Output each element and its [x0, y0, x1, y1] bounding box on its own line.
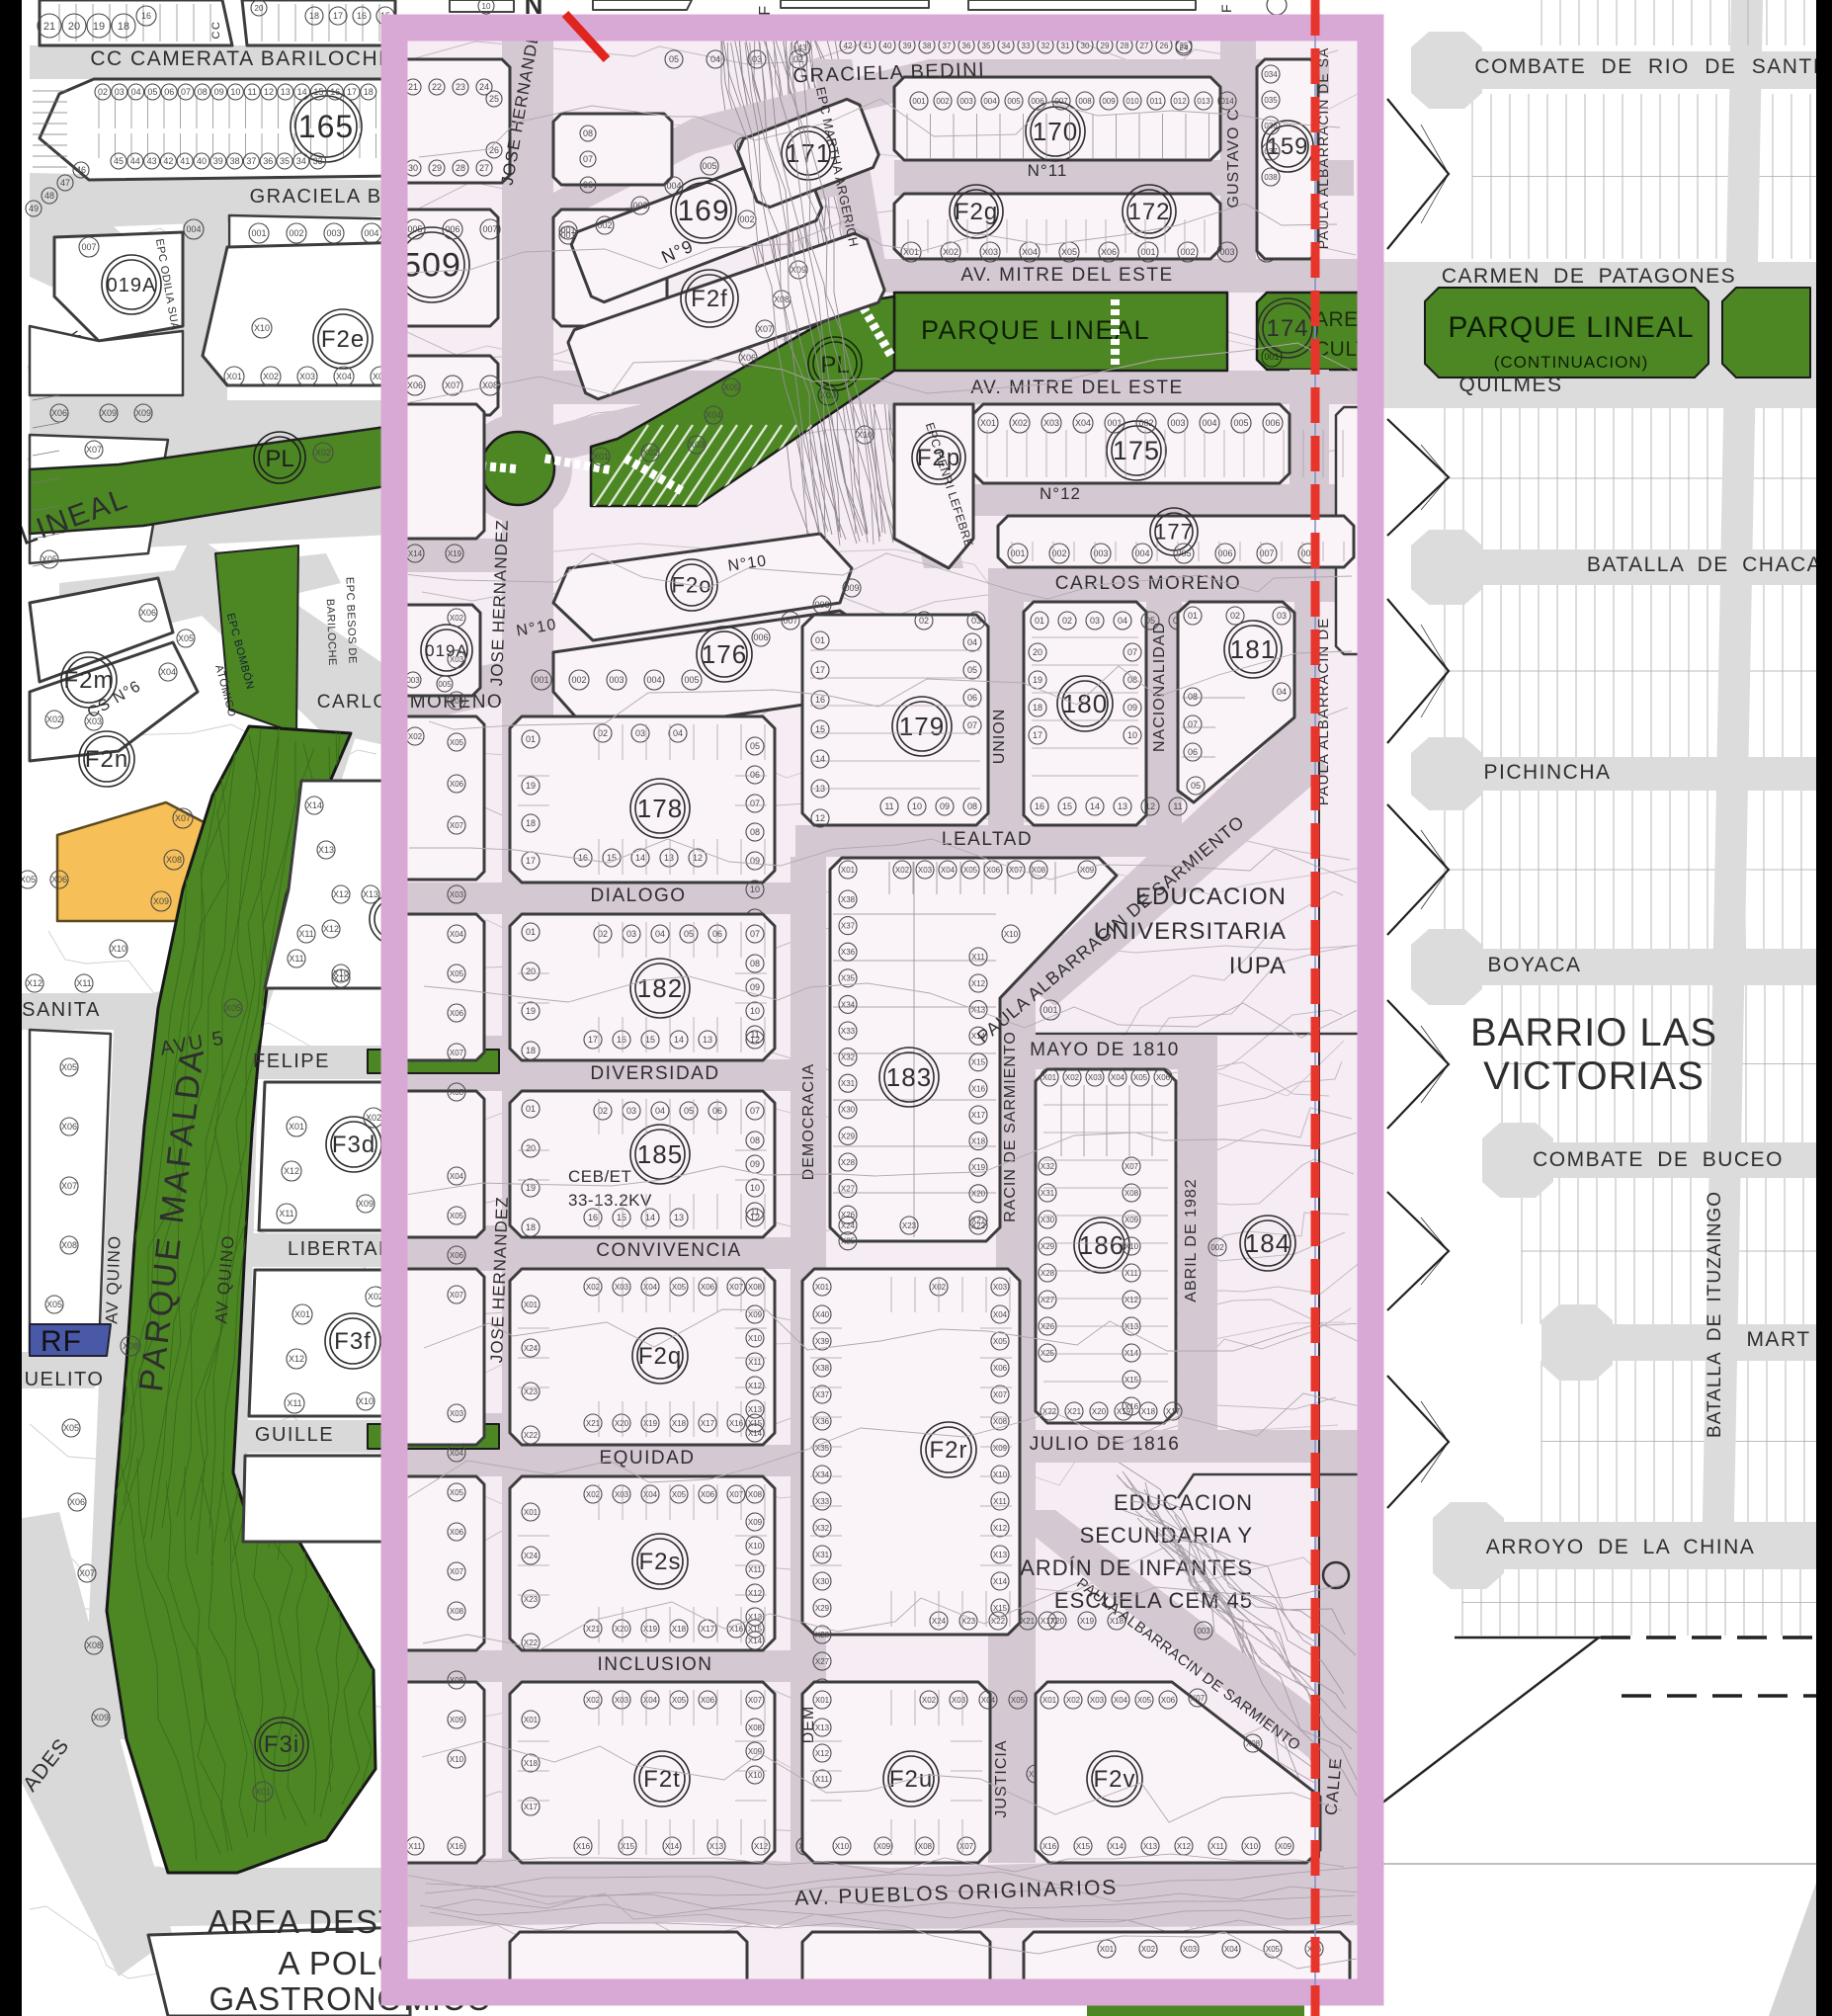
svg-text:002: 002: [1180, 247, 1195, 257]
svg-text:001: 001: [251, 228, 266, 238]
svg-text:08: 08: [967, 801, 977, 811]
svg-text:X09: X09: [101, 408, 117, 418]
svg-text:X11: X11: [408, 1842, 422, 1851]
svg-text:X14: X14: [306, 800, 322, 810]
svg-text:03: 03: [635, 728, 645, 738]
svg-text:X39: X39: [815, 1337, 830, 1346]
svg-text:SANITA: SANITA: [22, 999, 101, 1021]
svg-text:X10: X10: [748, 1334, 763, 1343]
svg-text:23: 23: [456, 82, 465, 92]
svg-text:DIVERSIDAD: DIVERSIDAD: [590, 1063, 719, 1084]
svg-text:28: 28: [1121, 42, 1129, 50]
svg-text:002: 002: [936, 97, 950, 106]
svg-text:X23: X23: [902, 1221, 917, 1230]
svg-text:X04: X04: [643, 1696, 658, 1705]
svg-text:30: 30: [408, 163, 418, 173]
svg-text:X09: X09: [1278, 1842, 1292, 1851]
svg-text:NACIONALIDAD: NACIONALIDAD: [1151, 622, 1168, 752]
svg-text:X15: X15: [1124, 1376, 1139, 1385]
svg-text:06: 06: [164, 87, 174, 97]
svg-text:GUILLE: GUILLE: [255, 1424, 334, 1446]
svg-text:X05: X05: [61, 1062, 77, 1072]
svg-text:02: 02: [598, 929, 608, 939]
svg-text:X05: X05: [1061, 247, 1077, 257]
svg-text:27: 27: [1140, 42, 1149, 50]
svg-text:X06: X06: [407, 380, 423, 390]
svg-text:X08: X08: [450, 1607, 464, 1616]
svg-text:X18: X18: [524, 1759, 539, 1768]
svg-text:08: 08: [198, 87, 208, 97]
svg-text:38: 38: [230, 156, 240, 166]
svg-text:009: 009: [1102, 97, 1116, 106]
svg-text:X12: X12: [289, 1354, 304, 1364]
svg-text:X08: X08: [748, 1723, 763, 1732]
svg-text:004: 004: [364, 228, 378, 238]
svg-text:35: 35: [982, 42, 991, 50]
svg-text:X11: X11: [1210, 1842, 1224, 1851]
svg-text:X06: X06: [986, 866, 1001, 875]
svg-text:X05: X05: [672, 1696, 687, 1705]
svg-text:39: 39: [213, 156, 223, 166]
svg-text:006: 006: [1265, 418, 1280, 428]
svg-text:X06: X06: [450, 1528, 464, 1537]
svg-text:004: 004: [646, 675, 661, 685]
svg-text:20: 20: [255, 4, 264, 13]
svg-text:X02: X02: [922, 1696, 937, 1705]
svg-text:X12: X12: [333, 889, 349, 899]
svg-text:001: 001: [1042, 1005, 1057, 1015]
svg-text:X10: X10: [993, 1470, 1008, 1479]
svg-text:X11: X11: [287, 1398, 301, 1408]
svg-text:X17: X17: [701, 1419, 715, 1428]
svg-text:X10: X10: [450, 1755, 464, 1764]
svg-text:X12: X12: [971, 979, 986, 988]
svg-text:X02: X02: [586, 1696, 601, 1705]
svg-text:X24: X24: [841, 1221, 856, 1230]
svg-text:X06: X06: [701, 1283, 715, 1292]
svg-text:X09: X09: [1124, 1216, 1139, 1224]
svg-text:X08: X08: [1032, 866, 1046, 875]
svg-text:005: 005: [1233, 418, 1248, 428]
svg-text:07: 07: [750, 929, 760, 939]
svg-text:019A: 019A: [107, 275, 157, 296]
svg-text:EQUIDAD: EQUIDAD: [599, 1448, 695, 1469]
svg-text:X20: X20: [615, 1419, 629, 1428]
svg-text:X07: X07: [450, 1291, 464, 1300]
svg-text:X04: X04: [1111, 1073, 1125, 1082]
svg-text:005: 005: [438, 680, 452, 689]
svg-text:X07: X07: [61, 1181, 77, 1191]
svg-text:X12: X12: [1177, 1842, 1192, 1851]
svg-text:12: 12: [815, 813, 825, 823]
svg-text:05: 05: [1191, 781, 1201, 791]
svg-text:X32: X32: [815, 1524, 830, 1533]
svg-text:001: 001: [1107, 418, 1122, 428]
svg-text:06: 06: [750, 770, 760, 780]
svg-text:006: 006: [753, 632, 768, 642]
svg-text:X34: X34: [815, 1470, 830, 1479]
svg-text:19: 19: [93, 21, 105, 33]
svg-text:X04: X04: [1114, 1696, 1128, 1705]
svg-text:X08: X08: [748, 1283, 763, 1292]
svg-text:003: 003: [1197, 1627, 1210, 1636]
svg-text:X03: X03: [450, 1409, 464, 1418]
svg-text:008: 008: [814, 600, 829, 610]
svg-text:F2v: F2v: [1093, 1766, 1135, 1793]
svg-text:X06: X06: [993, 1364, 1008, 1373]
svg-text:X05: X05: [63, 1423, 79, 1433]
svg-text:44: 44: [130, 156, 140, 166]
svg-text:X03: X03: [615, 1490, 629, 1499]
svg-text:X07: X07: [993, 1390, 1008, 1399]
svg-text:X13: X13: [1143, 1842, 1158, 1851]
svg-text:(CONTINUACION): (CONTINUACION): [1494, 353, 1649, 372]
svg-text:X03: X03: [982, 247, 998, 257]
svg-text:X19: X19: [1117, 1407, 1131, 1416]
svg-text:41: 41: [180, 156, 190, 166]
svg-text:04: 04: [655, 929, 665, 939]
svg-text:002: 002: [289, 228, 303, 238]
svg-text:29: 29: [432, 163, 442, 173]
svg-text:X06: X06: [450, 1251, 464, 1260]
svg-text:X27: X27: [815, 1657, 830, 1666]
svg-text:X07: X07: [79, 1568, 95, 1578]
svg-text:08: 08: [583, 128, 593, 138]
svg-text:037: 037: [1264, 147, 1278, 156]
svg-text:X04: X04: [336, 372, 352, 381]
svg-text:X21: X21: [1067, 1407, 1082, 1416]
svg-text:X07: X07: [450, 821, 464, 830]
svg-text:X07: X07: [729, 1490, 744, 1499]
svg-text:X38: X38: [815, 1364, 830, 1373]
svg-text:18: 18: [526, 1222, 536, 1232]
svg-text:FELIPE: FELIPE: [253, 1050, 330, 1072]
svg-text:X16: X16: [729, 1419, 744, 1428]
svg-text:X02: X02: [1141, 1945, 1156, 1954]
svg-text:X01: X01: [815, 1696, 830, 1705]
svg-text:X09: X09: [135, 408, 151, 418]
svg-text:X04: X04: [643, 1490, 658, 1499]
svg-text:002: 002: [1051, 548, 1066, 558]
svg-text:X03: X03: [952, 1696, 966, 1705]
svg-text:17: 17: [815, 665, 825, 675]
svg-text:UNION: UNION: [991, 709, 1008, 765]
svg-text:002: 002: [739, 214, 754, 224]
svg-text:X04: X04: [450, 697, 464, 706]
svg-text:003: 003: [609, 675, 624, 685]
svg-text:20: 20: [526, 1143, 536, 1153]
svg-text:X31: X31: [1041, 1189, 1055, 1198]
svg-text:X05: X05: [450, 1212, 464, 1220]
svg-text:18: 18: [118, 21, 129, 33]
svg-text:X23: X23: [524, 1595, 539, 1604]
svg-text:CARMEN DE PATAGONES: CARMEN DE PATAGONES: [1442, 265, 1736, 288]
svg-text:X06: X06: [701, 1696, 715, 1705]
svg-text:X08: X08: [748, 1490, 763, 1499]
svg-text:X10: X10: [748, 1771, 763, 1780]
svg-text:002: 002: [1210, 1243, 1224, 1252]
svg-text:X14: X14: [408, 549, 423, 558]
svg-text:X02: X02: [1066, 1696, 1081, 1705]
svg-text:010: 010: [1125, 97, 1139, 106]
svg-text:X09: X09: [93, 1713, 109, 1722]
svg-text:X06: X06: [1156, 1073, 1171, 1082]
svg-text:DEM: DEM: [800, 1706, 817, 1744]
svg-text:X01: X01: [1042, 1073, 1057, 1082]
svg-text:X01: X01: [524, 1301, 539, 1309]
svg-text:X05: X05: [993, 1337, 1008, 1346]
svg-text:X13: X13: [363, 889, 378, 899]
svg-text:06: 06: [1188, 747, 1198, 757]
svg-text:X08: X08: [450, 1088, 464, 1097]
svg-text:004: 004: [186, 224, 201, 234]
svg-text:X14: X14: [665, 1842, 680, 1851]
svg-text:AV. MITRE DEL ESTE: AV. MITRE DEL ESTE: [960, 265, 1173, 286]
svg-text:X10: X10: [748, 1542, 763, 1551]
svg-text:X05: X05: [723, 382, 739, 392]
svg-text:X12: X12: [993, 1524, 1008, 1533]
svg-text:X38: X38: [841, 895, 856, 904]
svg-text:09: 09: [750, 856, 760, 866]
svg-text:SECUNDARIA Y: SECUNDARIA Y: [1080, 1523, 1253, 1548]
svg-text:14: 14: [674, 1035, 684, 1045]
svg-text:X10: X10: [358, 1396, 374, 1406]
svg-text:X20: X20: [971, 1190, 986, 1199]
svg-text:X03: X03: [689, 440, 705, 450]
svg-text:X05: X05: [1137, 1696, 1152, 1705]
svg-text:X26: X26: [1041, 1322, 1055, 1331]
svg-text:X24: X24: [524, 1344, 539, 1353]
svg-text:CONVIVENCIA: CONVIVENCIA: [596, 1240, 741, 1261]
svg-text:X02: X02: [895, 866, 910, 875]
svg-text:X07: X07: [1191, 1694, 1206, 1703]
svg-text:36: 36: [263, 156, 273, 166]
svg-text:42: 42: [163, 156, 173, 166]
svg-text:X09: X09: [876, 1842, 891, 1851]
svg-text:08: 08: [1188, 692, 1198, 702]
svg-text:003: 003: [406, 676, 420, 685]
svg-text:X09: X09: [153, 896, 169, 906]
svg-text:11: 11: [248, 87, 257, 97]
svg-text:X21: X21: [586, 1419, 601, 1428]
svg-text:22: 22: [432, 82, 442, 92]
svg-text:N°11: N°11: [1028, 161, 1068, 180]
svg-text:RACIN DE SARMIENTO: RACIN DE SARMIENTO: [1002, 1031, 1019, 1222]
svg-text:005: 005: [702, 161, 716, 171]
svg-text:X05: X05: [672, 1283, 687, 1292]
svg-text:01: 01: [1188, 611, 1198, 621]
svg-text:12: 12: [264, 87, 274, 97]
svg-text:170: 170: [1033, 117, 1078, 146]
svg-text:11: 11: [1173, 801, 1182, 811]
svg-text:03: 03: [752, 54, 762, 64]
svg-text:X12: X12: [748, 1382, 763, 1390]
svg-text:X02: X02: [315, 448, 331, 458]
svg-text:X08: X08: [123, 1341, 138, 1351]
svg-text:007: 007: [1259, 548, 1274, 558]
svg-text:001: 001: [912, 97, 926, 106]
svg-text:036: 036: [1264, 122, 1278, 130]
svg-text:18: 18: [364, 87, 374, 97]
svg-text:07: 07: [1127, 647, 1137, 657]
svg-text:X11: X11: [993, 1497, 1007, 1506]
svg-text:VICTORIAS: VICTORIAS: [1483, 1054, 1705, 1098]
svg-text:33: 33: [313, 156, 323, 166]
svg-text:X09: X09: [748, 1518, 763, 1527]
svg-text:X05: X05: [450, 1488, 464, 1497]
svg-text:171: 171: [786, 138, 831, 168]
svg-text:X18: X18: [672, 1625, 687, 1634]
svg-text:X01: X01: [294, 1309, 310, 1319]
svg-text:18: 18: [526, 818, 536, 828]
svg-text:F2n: F2n: [85, 746, 128, 773]
svg-text:14: 14: [297, 87, 307, 97]
svg-text:X01: X01: [1100, 1945, 1115, 1954]
svg-text:002: 002: [597, 220, 612, 230]
svg-text:13: 13: [1118, 801, 1127, 811]
svg-text:X04: X04: [450, 1172, 464, 1181]
svg-text:X11: X11: [279, 1209, 293, 1218]
svg-text:03: 03: [1277, 611, 1287, 621]
svg-text:02: 02: [598, 1106, 608, 1116]
svg-text:X08: X08: [166, 855, 182, 865]
svg-text:X14: X14: [1110, 1842, 1124, 1851]
svg-text:X11: X11: [289, 954, 303, 964]
svg-text:30: 30: [1081, 42, 1090, 50]
svg-text:X16: X16: [971, 1084, 986, 1093]
svg-text:X04: X04: [1075, 418, 1091, 428]
svg-text:37: 37: [943, 42, 952, 50]
svg-text:X17: X17: [971, 1111, 986, 1120]
svg-text:17: 17: [333, 11, 343, 21]
svg-text:04: 04: [967, 637, 977, 647]
svg-text:BARRIO LAS: BARRIO LAS: [1470, 1011, 1717, 1054]
svg-text:X31: X31: [815, 1551, 830, 1559]
svg-text:007: 007: [482, 224, 497, 234]
svg-text:X05: X05: [1133, 1073, 1148, 1082]
svg-text:179: 179: [899, 712, 945, 741]
svg-text:36: 36: [962, 42, 971, 50]
svg-text:X28: X28: [815, 1631, 830, 1639]
svg-text:006: 006: [1031, 97, 1044, 106]
svg-text:F2e: F2e: [321, 326, 365, 353]
svg-text:F2s: F2s: [638, 1549, 681, 1575]
svg-text:01: 01: [1035, 616, 1044, 626]
svg-text:X07: X07: [757, 324, 773, 334]
svg-text:X07: X07: [445, 380, 460, 390]
svg-text:49: 49: [29, 204, 39, 213]
svg-text:12: 12: [750, 1213, 760, 1222]
svg-text:X06: X06: [61, 1122, 77, 1132]
svg-text:F2f: F2f: [691, 286, 728, 312]
svg-text:181: 181: [1230, 634, 1276, 664]
svg-text:X16: X16: [450, 1842, 464, 1851]
svg-text:04: 04: [655, 1106, 665, 1116]
svg-text:03: 03: [626, 1106, 636, 1116]
svg-text:X34: X34: [841, 1000, 856, 1009]
svg-text:013: 013: [1197, 97, 1210, 106]
svg-text:169: 169: [677, 195, 729, 227]
svg-text:006: 006: [445, 224, 459, 234]
svg-text:43: 43: [147, 156, 157, 166]
svg-text:X01: X01: [289, 1122, 304, 1132]
svg-text:X04: X04: [643, 1283, 658, 1292]
svg-text:X03: X03: [993, 1283, 1008, 1292]
svg-text:13: 13: [281, 87, 291, 97]
svg-text:UNIVERSITARIA: UNIVERSITARIA: [1094, 918, 1287, 945]
svg-text:09: 09: [750, 1159, 760, 1169]
svg-text:X05: X05: [20, 875, 36, 884]
svg-text:12: 12: [693, 853, 703, 863]
svg-text:42: 42: [844, 42, 853, 50]
svg-text:25: 25: [489, 94, 499, 104]
svg-text:038: 038: [1264, 173, 1278, 182]
svg-text:003: 003: [1219, 247, 1234, 257]
svg-text:X31: X31: [841, 1079, 856, 1088]
svg-text:BOYACA: BOYACA: [1488, 954, 1582, 976]
svg-text:X07: X07: [729, 1283, 744, 1292]
svg-text:CC CAMERATA BARILOCHE: CC CAMERATA BARILOCHE: [90, 47, 393, 70]
svg-text:X11: X11: [748, 1358, 762, 1367]
svg-text:X21: X21: [1021, 1617, 1036, 1626]
svg-text:EDUCACION: EDUCACION: [1114, 1490, 1253, 1515]
svg-text:X07: X07: [1124, 1162, 1139, 1171]
svg-text:14: 14: [815, 754, 825, 764]
svg-text:LIBERTAD: LIBERTAD: [288, 1238, 394, 1260]
svg-text:07: 07: [750, 1106, 760, 1116]
svg-text:BATALLA DE CHACA: BATALLA DE CHACA: [1587, 553, 1822, 576]
svg-text:X17: X17: [701, 1625, 715, 1634]
svg-text:F3d: F3d: [332, 1132, 375, 1158]
svg-text:X10: X10: [111, 944, 126, 954]
svg-text:03: 03: [626, 929, 636, 939]
svg-text:007: 007: [81, 242, 96, 252]
svg-text:X02: X02: [263, 372, 279, 381]
svg-text:16: 16: [330, 87, 340, 97]
svg-text:JULIO DE 1816: JULIO DE 1816: [1030, 1434, 1181, 1455]
svg-text:X09: X09: [450, 1716, 464, 1724]
svg-text:X15: X15: [1076, 1842, 1091, 1851]
svg-text:41: 41: [864, 42, 873, 50]
svg-text:09: 09: [214, 87, 224, 97]
svg-text:38: 38: [923, 42, 932, 50]
svg-text:X01: X01: [255, 1787, 271, 1797]
svg-text:001: 001: [560, 225, 575, 235]
svg-text:X03: X03: [86, 716, 102, 726]
svg-text:X03: X03: [615, 1283, 629, 1292]
svg-text:X04: X04: [450, 1449, 464, 1458]
svg-text:BARILOCHE: BARILOCHE: [324, 599, 338, 666]
svg-text:CARLOS MORENO: CARLOS MORENO: [1055, 573, 1241, 594]
svg-text:46: 46: [76, 165, 86, 175]
svg-text:X17: X17: [1166, 1407, 1181, 1416]
svg-text:001: 001: [1010, 548, 1025, 558]
svg-text:MAYO DE 1810: MAYO DE 1810: [1030, 1040, 1180, 1060]
svg-text:007: 007: [783, 616, 797, 626]
svg-text:05: 05: [684, 1106, 694, 1116]
svg-text:X15: X15: [971, 1058, 986, 1067]
svg-text:10: 10: [750, 1183, 760, 1193]
svg-text:03: 03: [1090, 616, 1100, 626]
svg-text:X11: X11: [748, 1565, 762, 1574]
svg-text:F: F: [757, 4, 774, 15]
svg-text:X12: X12: [748, 1589, 763, 1598]
svg-text:07: 07: [967, 720, 977, 730]
svg-text:004: 004: [1134, 548, 1149, 558]
svg-text:X07: X07: [450, 1567, 464, 1576]
svg-text:16: 16: [141, 11, 151, 21]
svg-text:X32: X32: [1041, 1162, 1055, 1171]
